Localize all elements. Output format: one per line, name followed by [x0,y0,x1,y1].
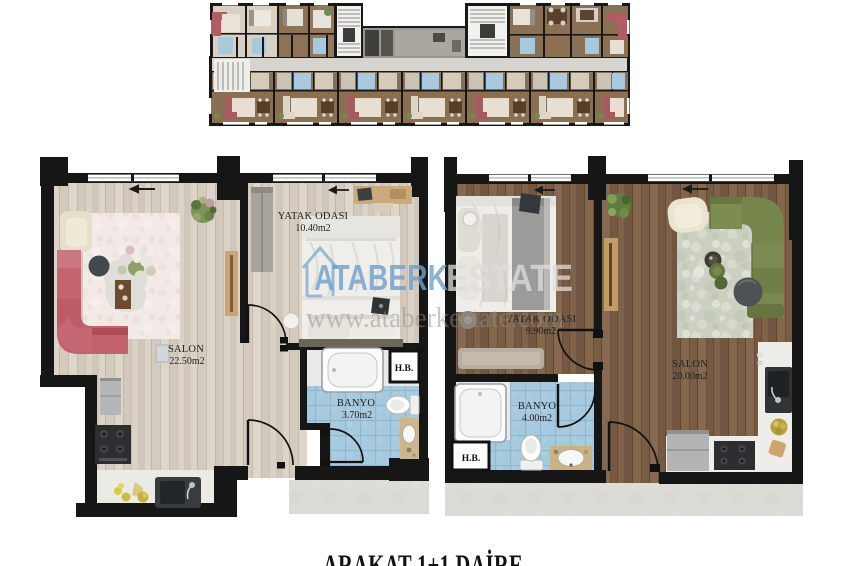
svg-text:H.B.: H.B. [395,364,413,374]
svg-text:H.B.: H.B. [462,454,480,464]
svg-text:22.50m2: 22.50m2 [169,356,204,367]
svg-text:3.70m2: 3.70m2 [342,410,372,421]
svg-text:20.00m2: 20.00m2 [672,371,707,382]
svg-text:ATABERK: ATABERK [314,257,448,298]
svg-text:10.40m2: 10.40m2 [295,223,330,234]
svg-text:BANYO: BANYO [518,401,557,412]
svg-text:ESTATE: ESTATE [446,258,573,300]
svg-text:www.ataberkestate.com: www.ataberkestate.com [306,303,564,334]
svg-text:4.00m2: 4.00m2 [522,413,552,424]
svg-text:SALON: SALON [168,344,204,355]
svg-text:BANYO: BANYO [337,398,376,409]
svg-text:YATAK ODASI: YATAK ODASI [278,211,349,222]
svg-text:ARAKAT 1+1 DAİRE: ARAKAT 1+1 DAİRE [323,549,523,566]
svg-text:SALON: SALON [672,359,708,370]
